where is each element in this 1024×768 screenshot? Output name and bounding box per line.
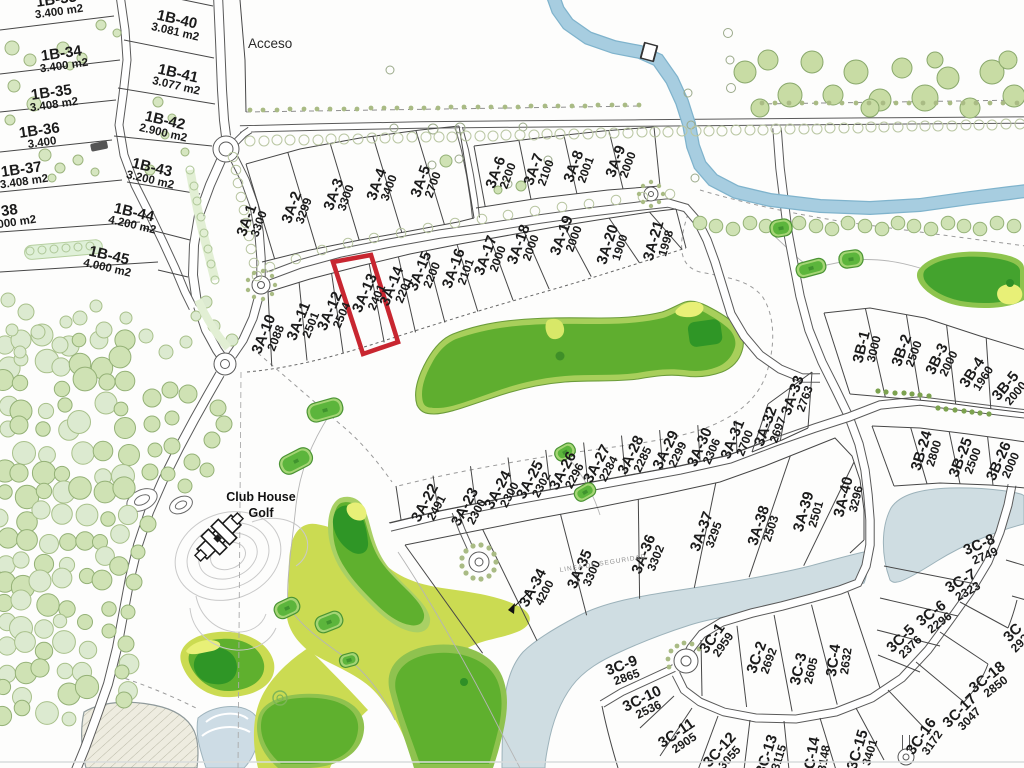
svg-text:Golf: Golf (249, 506, 275, 520)
svg-text:Club House: Club House (226, 490, 295, 504)
svg-text:Acceso: Acceso (248, 36, 292, 51)
